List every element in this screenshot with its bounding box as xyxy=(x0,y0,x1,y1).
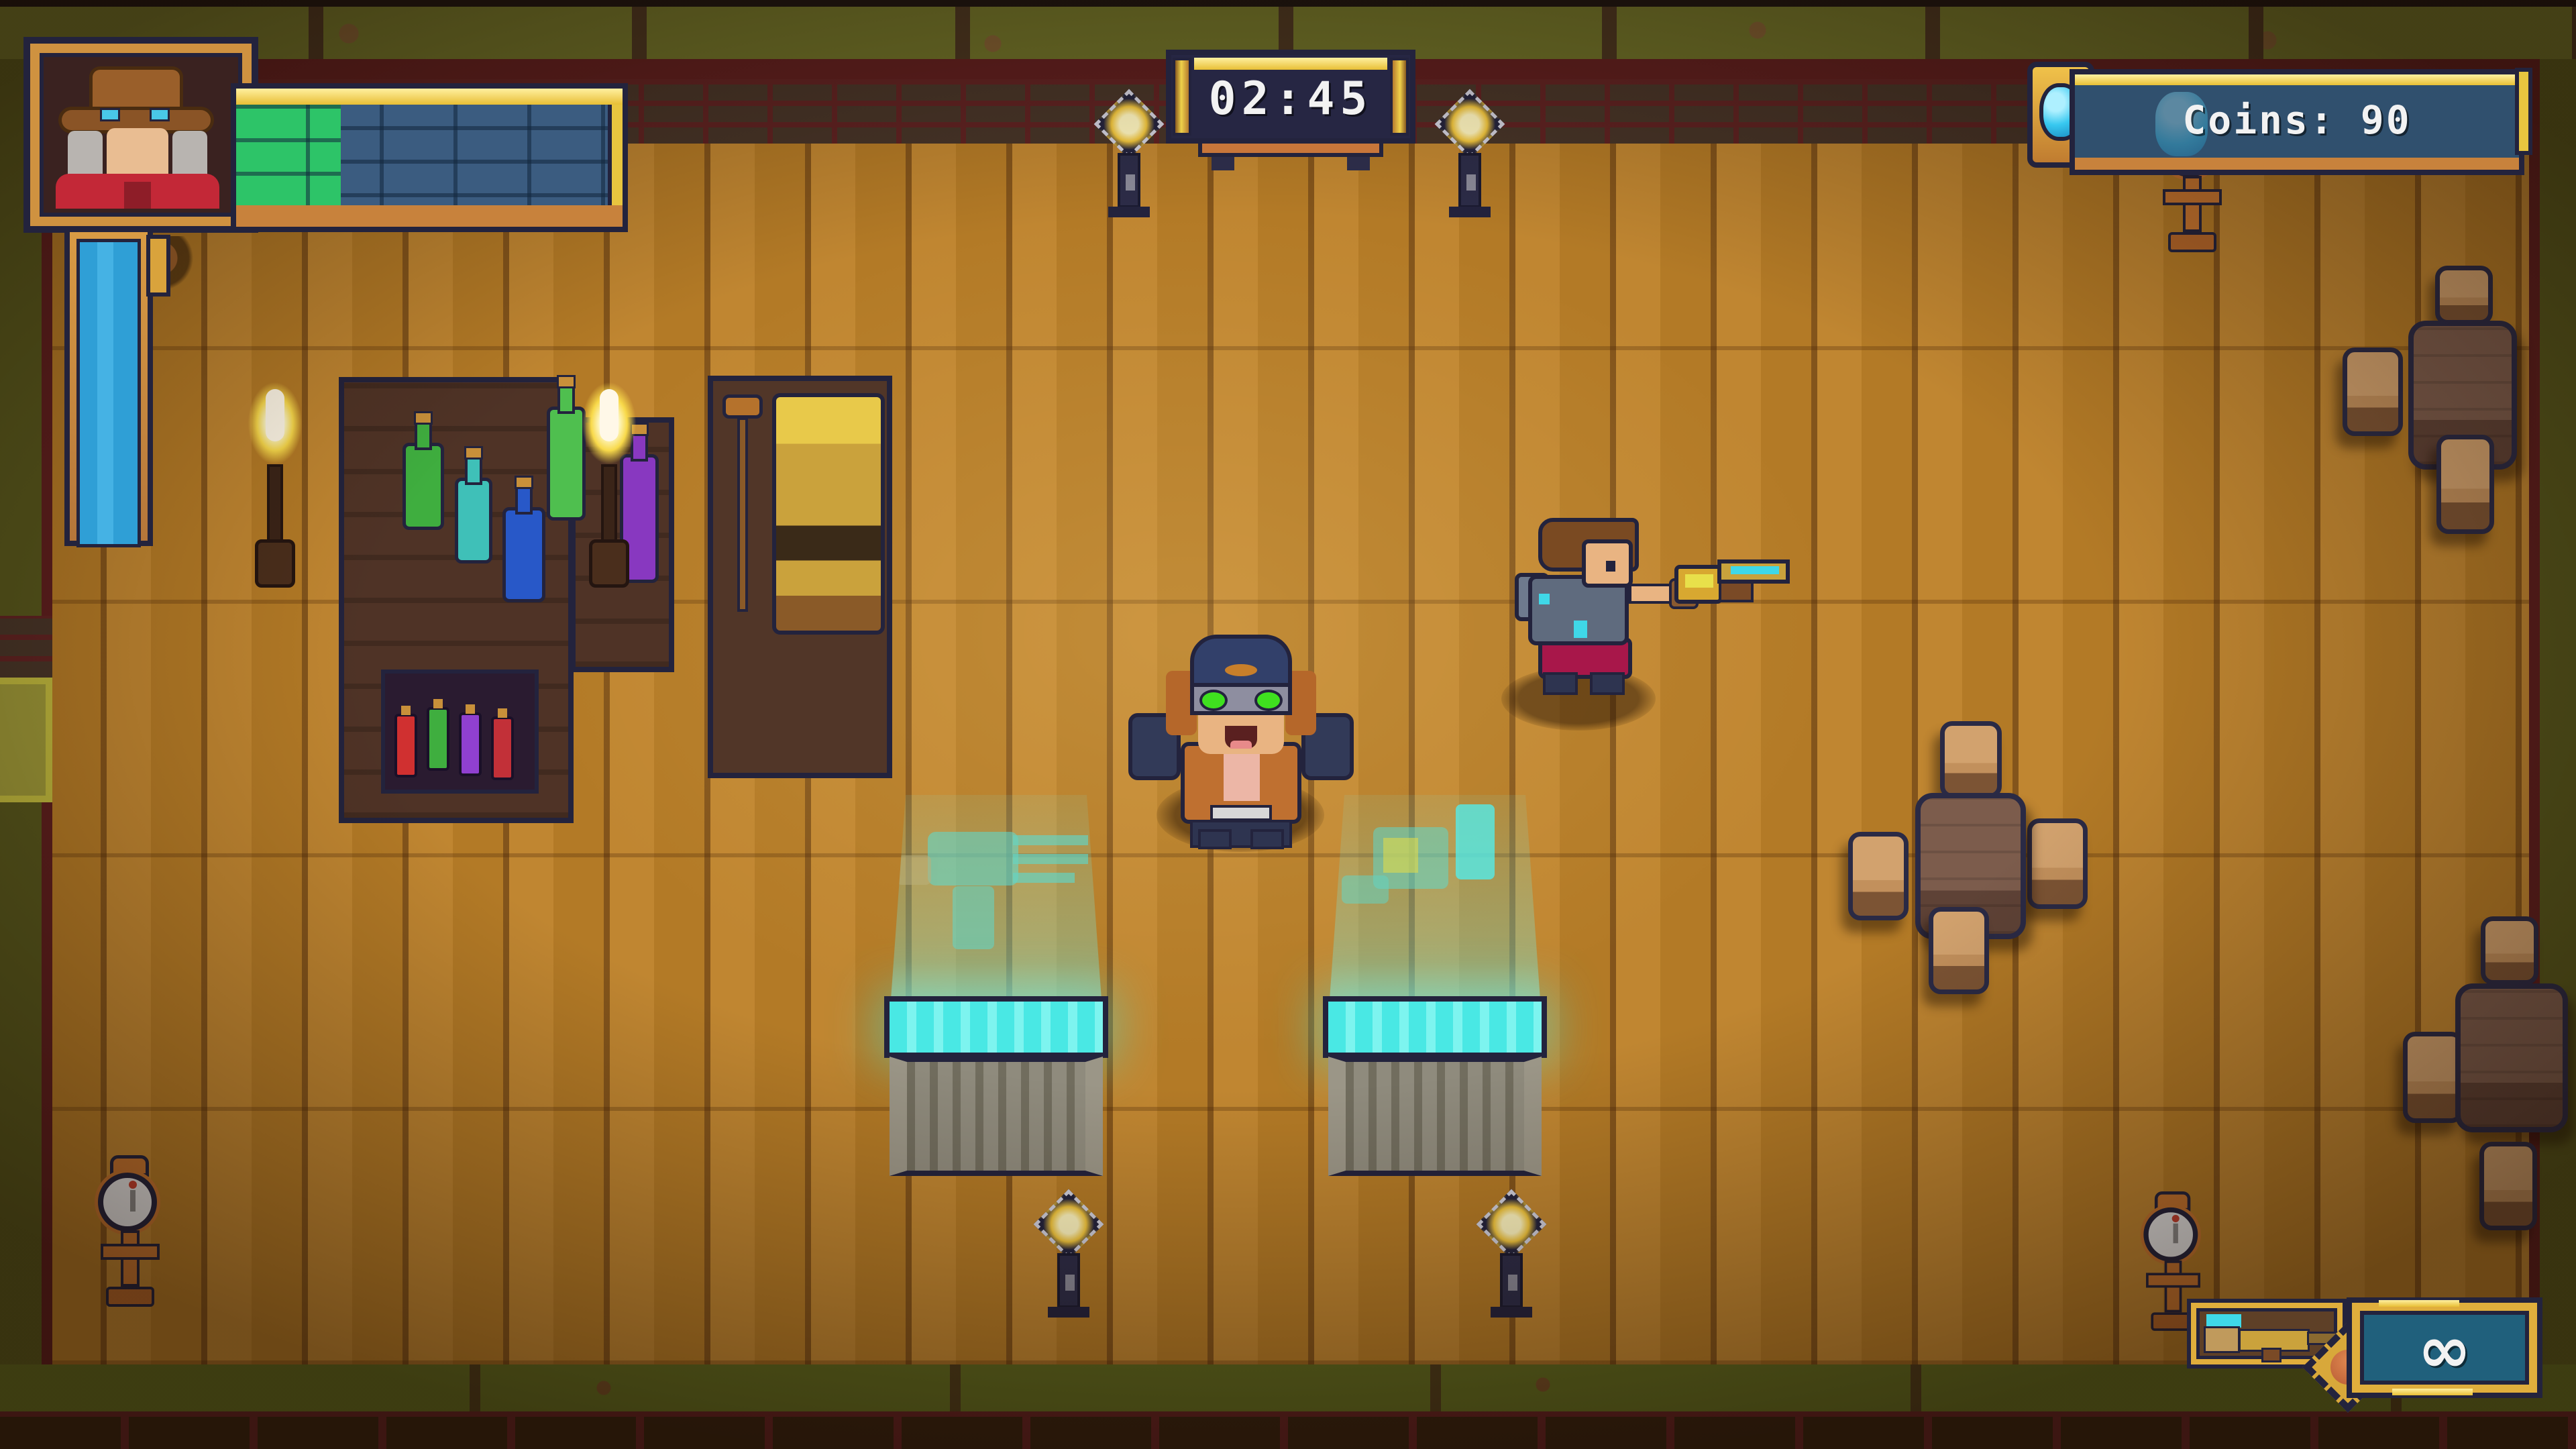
standing-clock xyxy=(93,1155,168,1313)
special-meter xyxy=(64,227,153,546)
wall-lantern xyxy=(1040,1199,1097,1327)
left-door-lintel xyxy=(0,616,52,678)
armor-glow-pixel xyxy=(1574,621,1587,638)
timer-value: 02:45 xyxy=(1171,72,1410,125)
blue-bottle-icon xyxy=(502,507,545,602)
health-bar xyxy=(231,83,628,232)
timer-base xyxy=(1198,140,1383,157)
blaster-hologram-cell xyxy=(1456,804,1495,879)
ammo-panel-inner: ∞ xyxy=(2360,1311,2529,1385)
ammo-gold-highlight xyxy=(2379,1300,2459,1307)
clock-hand xyxy=(130,1190,136,1212)
timer-foot xyxy=(1212,157,1234,170)
player-eye xyxy=(1606,561,1615,572)
floor-lamp xyxy=(581,370,637,598)
npc-mouth xyxy=(1225,726,1257,749)
chair xyxy=(2435,266,2493,325)
cash-register-table[interactable] xyxy=(708,376,892,778)
case-metal-base xyxy=(1328,1057,1542,1176)
lantern-window xyxy=(1466,174,1476,191)
chair xyxy=(1929,907,1989,994)
npc-boot xyxy=(1198,829,1232,849)
register-lever-pole xyxy=(737,417,748,612)
chair xyxy=(2403,1032,2463,1123)
minigun-hologram-body xyxy=(928,832,1018,885)
lantern-glow-icon xyxy=(1477,1189,1547,1260)
lantern-base xyxy=(1048,1307,1089,1318)
display-case-blaster[interactable] xyxy=(1323,795,1547,1181)
rifle-barrel xyxy=(1717,559,1790,584)
portrait-canvas xyxy=(50,61,231,209)
weapon-icon-stock xyxy=(2204,1326,2240,1353)
wall-lantern xyxy=(1100,99,1158,227)
npc-goggles-band xyxy=(1190,683,1292,715)
bottom-wall-grass xyxy=(0,1364,2576,1411)
blaster-hologram-grip xyxy=(1342,875,1389,904)
lamp-pole xyxy=(267,464,283,545)
rifle-window xyxy=(1685,574,1713,588)
teal-bottle-icon xyxy=(455,478,492,563)
red-potion-icon xyxy=(394,714,417,777)
chair xyxy=(2479,1142,2537,1230)
portrait-coat-collar xyxy=(124,182,151,209)
npc-chest xyxy=(1224,749,1260,801)
clock-base xyxy=(106,1287,154,1307)
blaster-hologram-window xyxy=(1383,838,1418,873)
lantern-post xyxy=(1057,1253,1080,1308)
wall-lantern xyxy=(1441,99,1499,227)
clock-face-icon xyxy=(98,1173,157,1232)
lantern-post xyxy=(1118,153,1140,208)
rifle-receiver xyxy=(1674,565,1723,604)
timer-panel: 02:45 xyxy=(1166,50,1415,144)
weapon-icon-grip xyxy=(2261,1348,2282,1362)
npc-cap-badge xyxy=(1225,664,1257,676)
game-screen[interactable]: 02:45 Coins: 90 ∞ xyxy=(0,0,2576,1449)
chair xyxy=(1848,832,1909,920)
lantern-post xyxy=(1500,1253,1523,1308)
npc-boot xyxy=(1250,829,1284,849)
clock-arms xyxy=(2146,1273,2200,1287)
coins-bracket xyxy=(2515,68,2532,155)
chair xyxy=(2027,818,2088,909)
clock-arms xyxy=(101,1244,160,1260)
chair xyxy=(2481,916,2538,985)
health-bar-copper-trim xyxy=(236,205,623,227)
red-potion-icon xyxy=(491,716,514,780)
coins-copper-trim xyxy=(2075,158,2519,170)
npc-face xyxy=(1198,715,1284,754)
player-boot xyxy=(1543,672,1578,695)
timer-gold-trim xyxy=(1194,58,1387,70)
ammo-gold-highlight xyxy=(2392,1389,2473,1395)
wall-lantern xyxy=(1483,1199,1540,1327)
player-face xyxy=(1582,539,1633,588)
lantern-glow-icon xyxy=(1435,89,1505,160)
lamp-flame-icon xyxy=(600,389,619,441)
npc-cap xyxy=(1190,635,1292,688)
health-bar-end-cap xyxy=(608,105,623,205)
lantern-base xyxy=(1449,207,1491,217)
armor-glow-pixel xyxy=(1539,594,1550,604)
clock-face-icon xyxy=(2143,1207,2198,1262)
lamp-base xyxy=(589,539,629,588)
coins-value: Coins: 90 xyxy=(2075,97,2519,143)
table xyxy=(2455,983,2568,1132)
green-potion-icon xyxy=(427,707,449,771)
rifle-energy-stripe xyxy=(1731,566,1779,574)
lantern-glow-icon xyxy=(1034,1189,1104,1260)
right-wall xyxy=(2540,59,2576,1364)
coins-panel: Coins: 90 xyxy=(2070,69,2524,175)
portrait-goggle-icon xyxy=(150,108,170,121)
hologram-beam xyxy=(891,795,1102,1000)
floor-lamp xyxy=(247,370,303,598)
ammo-panel: ∞ xyxy=(2347,1297,2542,1398)
minigun-hologram-stock xyxy=(896,855,931,885)
clock-hand xyxy=(2173,1224,2178,1243)
cash-register-icon xyxy=(772,393,885,635)
npc-belt-buckle xyxy=(1210,805,1272,821)
npc-goggle-lens xyxy=(1199,690,1228,711)
green-bottle-icon xyxy=(402,443,444,530)
timer-foot xyxy=(1347,157,1370,170)
lantern-base xyxy=(1491,1307,1532,1318)
clock-tick xyxy=(129,1181,137,1189)
clock-tick xyxy=(2172,1215,2180,1222)
npc-tongue xyxy=(1230,741,1252,749)
lantern-glow-icon xyxy=(1094,89,1165,160)
minigun-hologram-barrel xyxy=(1013,854,1088,864)
clock-base xyxy=(2168,232,2216,252)
minigun-hologram-barrel xyxy=(1013,873,1075,883)
lantern-window xyxy=(1126,174,1135,191)
health-bar-fill xyxy=(236,105,341,205)
chair xyxy=(2436,435,2494,534)
minigun-hologram-drum xyxy=(953,886,994,949)
portrait-goggle-icon xyxy=(100,108,120,121)
display-case-minigun[interactable] xyxy=(884,795,1108,1181)
top-edge xyxy=(0,0,2576,7)
special-meter-fill xyxy=(76,239,141,547)
chair xyxy=(1940,721,2002,798)
meter-bracket xyxy=(146,235,170,297)
hologram-beam xyxy=(1330,795,1540,1000)
ammo-count: ∞ xyxy=(2364,1312,2525,1387)
lantern-window xyxy=(1065,1275,1075,1291)
case-glass-top xyxy=(1323,996,1547,1058)
left-doorway-mat[interactable] xyxy=(0,678,52,802)
lantern-window xyxy=(1508,1275,1517,1291)
case-glass-top xyxy=(884,996,1108,1058)
npc-goggle-lens xyxy=(1254,690,1283,711)
clock-arms xyxy=(2163,189,2222,205)
player-boot xyxy=(1590,672,1625,695)
player-character[interactable] xyxy=(1501,518,1790,722)
weapon-icon-cell xyxy=(2206,1314,2241,1328)
coins-gold-trim xyxy=(2075,74,2519,85)
register-lever-handle xyxy=(722,394,763,419)
lantern-post xyxy=(1458,153,1481,208)
lamp-pole xyxy=(601,464,617,545)
health-bar-gold-trim xyxy=(236,89,623,105)
minigun-hologram-barrel xyxy=(1013,835,1088,845)
purple-potion-icon xyxy=(459,712,482,776)
case-metal-base xyxy=(890,1057,1103,1176)
player-portrait xyxy=(23,37,258,233)
lamp-flame-icon xyxy=(266,389,284,441)
potion-cabinet-window xyxy=(381,669,539,794)
health-bar-track xyxy=(236,105,623,205)
shopkeeper-npc[interactable] xyxy=(1128,629,1354,854)
lantern-base xyxy=(1108,207,1150,217)
bottom-wall-brick xyxy=(0,1411,2576,1449)
lamp-base xyxy=(255,539,295,588)
weapon-panel-inner xyxy=(2196,1308,2337,1359)
chair xyxy=(2343,347,2403,436)
